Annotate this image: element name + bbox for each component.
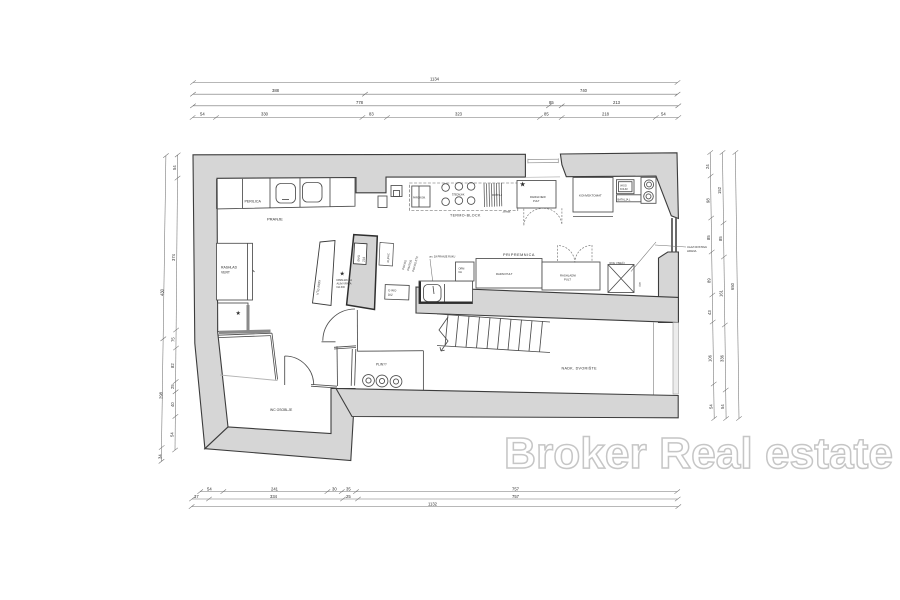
svg-text:ULAZ DOSTAVA: ULAZ DOSTAVA — [687, 245, 707, 249]
svg-text:83: 83 — [369, 112, 374, 117]
svg-text:161: 161 — [719, 289, 724, 297]
svg-text:NADK. DVORIŠTE: NADK. DVORIŠTE — [562, 366, 598, 371]
svg-text:98: 98 — [705, 198, 710, 203]
svg-text:85: 85 — [549, 100, 554, 105]
svg-text:54: 54 — [170, 432, 175, 437]
svg-text:ĐVO: ĐVO — [357, 254, 361, 261]
svg-text:★: ★ — [236, 310, 241, 317]
svg-text:89: 89 — [707, 278, 712, 283]
svg-text:650: 650 — [730, 282, 735, 290]
svg-text:106: 106 — [708, 354, 713, 362]
svg-text:34: 34 — [157, 454, 162, 459]
svg-text:★: ★ — [520, 181, 526, 189]
svg-text:336: 336 — [719, 354, 724, 362]
svg-text:85: 85 — [544, 112, 549, 117]
svg-text:241: 241 — [271, 486, 279, 491]
svg-text:757: 757 — [512, 494, 520, 499]
svg-text:PULT: PULT — [533, 199, 540, 203]
svg-text:RASHLAD: RASHLAD — [221, 266, 238, 270]
svg-text:25: 25 — [346, 494, 351, 499]
svg-text:334: 334 — [270, 494, 278, 499]
svg-text:ALIM VRATA: ALIM VRATA — [337, 282, 352, 286]
svg-text:82: 82 — [170, 363, 175, 368]
svg-text:374: 374 — [171, 253, 176, 261]
svg-text:PAROKOM.: PAROKOM. — [413, 197, 426, 200]
svg-text:ROŠTILJ: ROŠTILJ — [492, 194, 503, 197]
svg-text:KUPAC: KUPAC — [386, 253, 390, 263]
svg-text:RADNA NEW: RADNA NEW — [530, 195, 546, 199]
svg-text:75: 75 — [170, 337, 175, 342]
svg-text:54: 54 — [172, 165, 177, 170]
svg-text:RADNI PULT: RADNI PULT — [496, 272, 513, 276]
svg-text:778: 778 — [356, 100, 364, 105]
svg-text:30: 30 — [332, 486, 337, 491]
svg-text:54: 54 — [720, 404, 725, 409]
svg-text:PRANJE: PRANJE — [267, 217, 283, 222]
svg-text:43: 43 — [707, 310, 712, 315]
svg-text:218: 218 — [602, 112, 610, 117]
svg-text:35: 35 — [346, 486, 351, 491]
svg-text:298: 298 — [158, 391, 163, 399]
svg-text:PERILICA: PERILICA — [245, 200, 262, 204]
svg-text:40: 40 — [170, 402, 175, 407]
svg-text:NA: NA — [459, 271, 463, 274]
svg-text:TERMO-BLOCK: TERMO-BLOCK — [450, 214, 481, 218]
svg-text:218: 218 — [362, 256, 366, 262]
svg-text:740: 740 — [580, 88, 588, 93]
svg-text:152: 152 — [717, 186, 722, 194]
svg-text:NA ZID: NA ZID — [337, 285, 345, 289]
svg-text:24: 24 — [705, 164, 710, 169]
svg-text:KONVEKTOMAT: KONVEKTOMAT — [579, 194, 602, 198]
svg-text:54: 54 — [708, 404, 713, 409]
svg-text:BATALJA L: BATALJA L — [618, 197, 631, 201]
svg-text:WC OSOBLJE: WC OSOBLJE — [270, 408, 293, 412]
svg-text:430: 430 — [160, 288, 165, 296]
svg-text:HRANA: HRANA — [687, 249, 697, 253]
svg-text:PLIN??: PLIN?? — [376, 363, 387, 367]
svg-text:85: 85 — [718, 236, 723, 241]
svg-text:37: 37 — [194, 494, 199, 499]
svg-text:VERT: VERT — [221, 271, 230, 275]
svg-text:85: 85 — [706, 235, 711, 240]
svg-text:44R: 44R — [638, 282, 642, 287]
svg-text:1132: 1132 — [428, 501, 438, 506]
svg-text:757: 757 — [512, 486, 520, 491]
svg-text:DIMNJAK ZA: DIMNJAK ZA — [337, 278, 353, 282]
svg-text:1134: 1134 — [430, 77, 440, 82]
svg-text:„sherpa“: „sherpa“ — [503, 211, 512, 214]
svg-text:25: 25 — [170, 384, 175, 389]
svg-text:★: ★ — [340, 271, 345, 278]
svg-text:PULT: PULT — [564, 278, 571, 282]
svg-text:Broker Real estate: Broker Real estate — [504, 429, 893, 478]
svg-text:um. ZA PRANJE RUKU: um. ZA PRANJE RUKU — [429, 256, 455, 259]
svg-text:DIZ: DIZ — [388, 293, 393, 297]
svg-text:54: 54 — [207, 486, 212, 491]
svg-text:330: 330 — [261, 112, 269, 117]
svg-text:KOLIM: KOLIM — [620, 188, 627, 191]
svg-text:323: 323 — [455, 112, 463, 117]
svg-text:213: 213 — [613, 100, 621, 105]
svg-text:ŠTEDNJAK: ŠTEDNJAK — [452, 194, 465, 197]
svg-text:54: 54 — [661, 112, 666, 117]
svg-text:54: 54 — [200, 112, 205, 117]
svg-text:PRIPREMNICA: PRIPREMNICA — [503, 253, 535, 257]
svg-text:388: 388 — [272, 88, 280, 93]
